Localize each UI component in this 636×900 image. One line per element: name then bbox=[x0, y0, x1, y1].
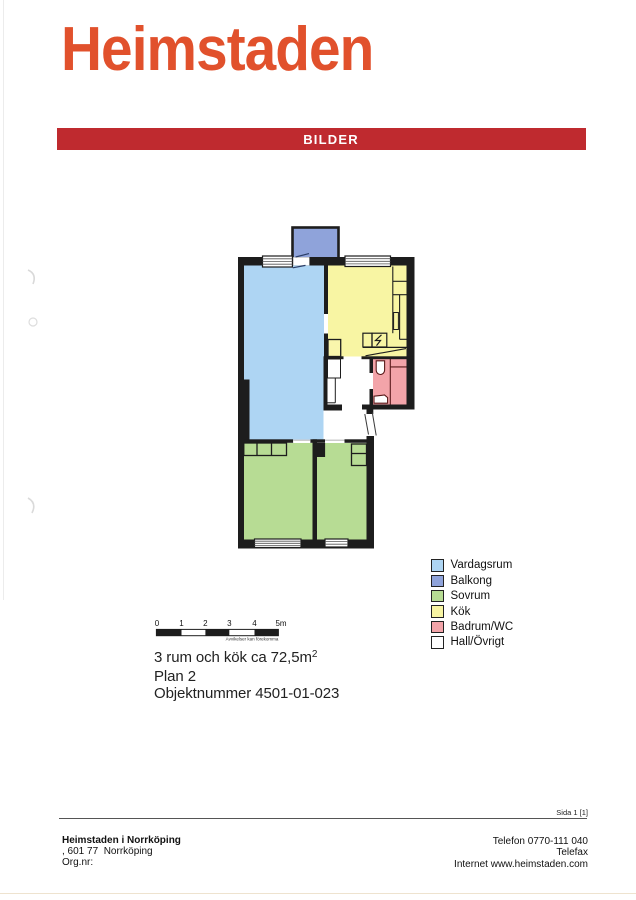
svg-text:1: 1 bbox=[179, 619, 184, 628]
svg-text:Avvikelser kan förekomma: Avvikelser kan förekomma bbox=[226, 637, 279, 642]
svg-text:3: 3 bbox=[227, 619, 232, 628]
svg-text:4: 4 bbox=[252, 619, 257, 628]
svg-text:0: 0 bbox=[155, 619, 160, 628]
svg-text:5m: 5m bbox=[275, 619, 286, 628]
svg-text:2: 2 bbox=[203, 619, 208, 628]
